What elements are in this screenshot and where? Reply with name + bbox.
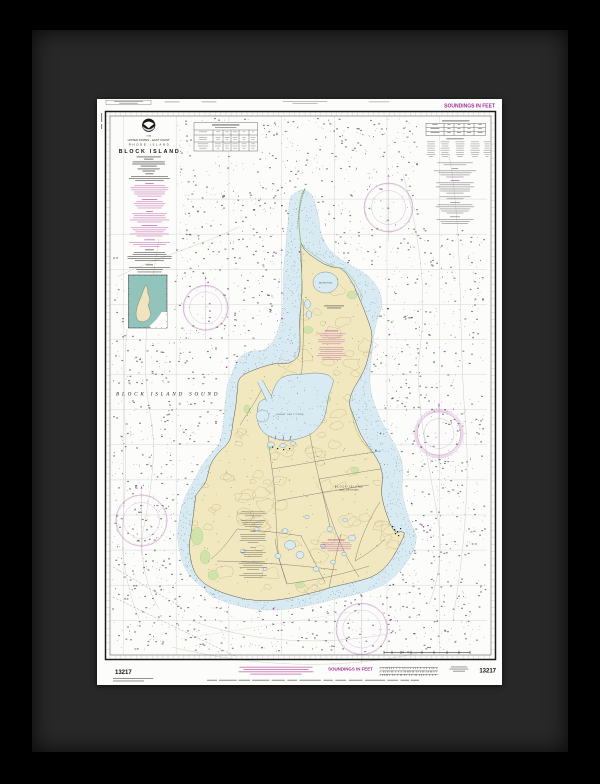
svg-text:GREAT SALT POND: GREAT SALT POND	[276, 413, 304, 416]
svg-text:SACHEM POND: SACHEM POND	[319, 282, 333, 285]
svg-text:BLOCK ISLAND: BLOCK ISLAND	[335, 485, 363, 489]
svg-text:(NEW SHOREHAM): (NEW SHOREHAM)	[339, 489, 359, 492]
svg-text:UNITED STATES – EAST COAST: UNITED STATES – EAST COAST	[128, 139, 171, 142]
